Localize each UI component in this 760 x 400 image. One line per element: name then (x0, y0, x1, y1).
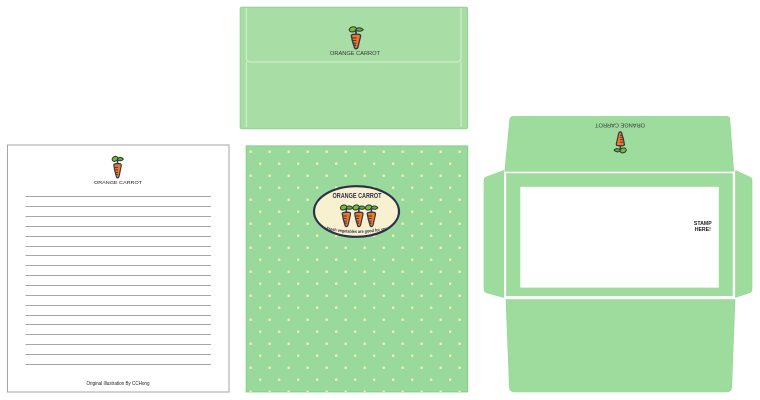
svg-text:Original Illustration By CCHon: Original Illustration By CCHong (87, 381, 150, 387)
svg-text:ORANGE CARROT: ORANGE CARROT (330, 51, 381, 57)
svg-text:ORANGE CARROT: ORANGE CARROT (594, 122, 645, 128)
svg-text:ORANGE CARROT: ORANGE CARROT (333, 193, 383, 200)
svg-text:ORANGE CARROT: ORANGE CARROT (94, 180, 142, 186)
svg-text:HERE!: HERE! (695, 227, 711, 233)
svg-text:STAMP: STAMP (694, 221, 712, 227)
